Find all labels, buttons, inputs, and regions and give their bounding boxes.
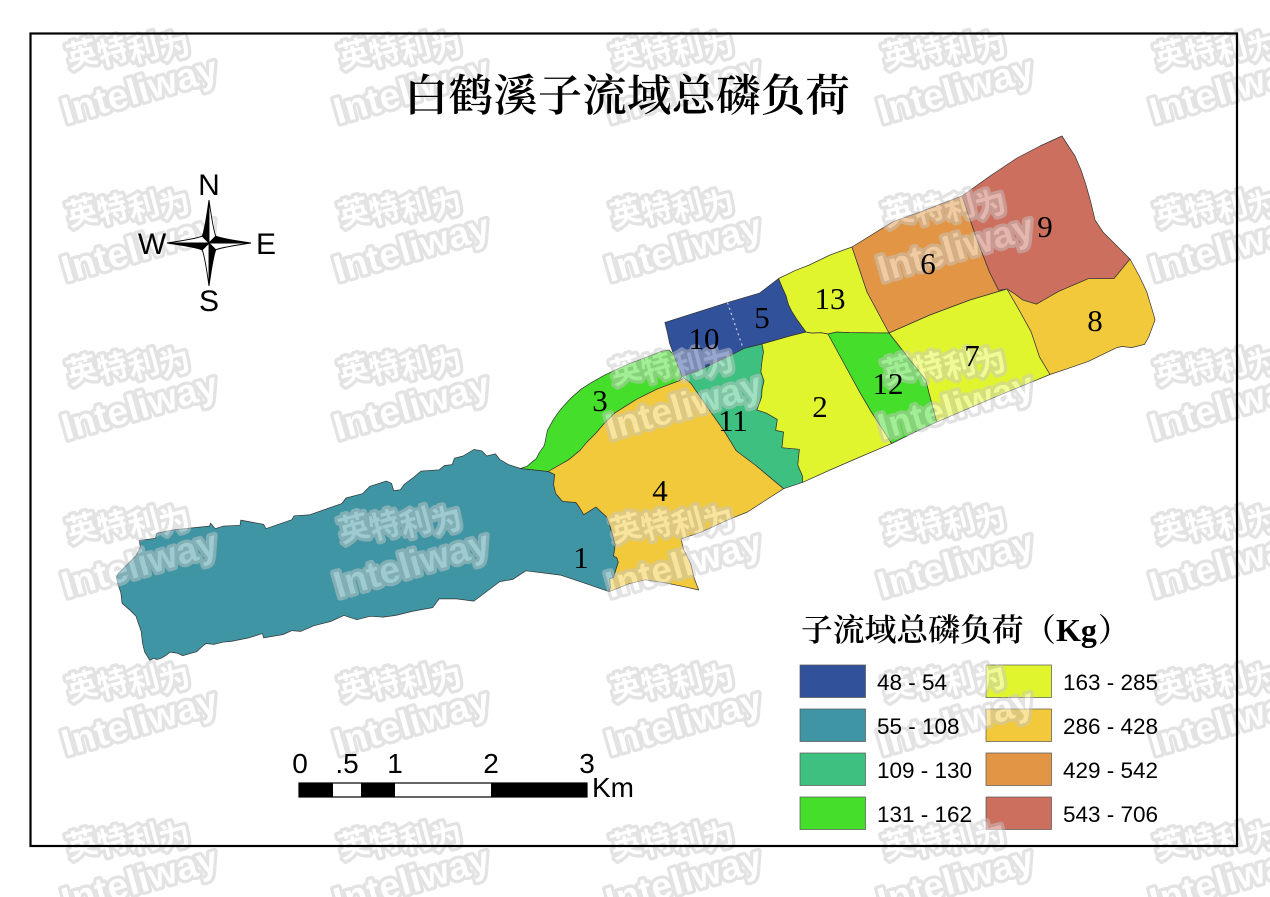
svg-text:9: 9 [1037, 209, 1053, 244]
svg-text:S: S [199, 285, 219, 318]
svg-text:10: 10 [689, 321, 720, 356]
svg-text:11: 11 [718, 403, 748, 438]
svg-text:7: 7 [964, 338, 980, 373]
svg-text:Km: Km [592, 772, 634, 803]
svg-text:13: 13 [815, 281, 846, 316]
svg-text:8: 8 [1087, 303, 1103, 338]
svg-text:5: 5 [754, 300, 770, 335]
svg-text:Kg: Kg [1056, 612, 1097, 648]
svg-text:55 - 108: 55 - 108 [877, 714, 960, 739]
svg-text:.5: .5 [335, 748, 358, 779]
svg-text:0: 0 [292, 748, 308, 779]
svg-text:3: 3 [592, 383, 608, 418]
svg-text:429 - 542: 429 - 542 [1063, 758, 1158, 783]
svg-text:W: W [138, 228, 167, 261]
svg-text:12: 12 [873, 366, 904, 401]
svg-text:131 - 162: 131 - 162 [877, 802, 972, 827]
svg-text:2: 2 [483, 748, 499, 779]
svg-text:286 - 428: 286 - 428 [1063, 714, 1158, 739]
svg-text:163 - 285: 163 - 285 [1063, 670, 1158, 695]
svg-text:2: 2 [812, 389, 828, 424]
svg-text:E: E [256, 228, 276, 261]
svg-text:6: 6 [920, 246, 936, 281]
svg-text:1: 1 [387, 748, 403, 779]
svg-text:543 - 706: 543 - 706 [1063, 802, 1158, 827]
svg-text:4: 4 [652, 473, 668, 508]
svg-text:48 - 54: 48 - 54 [877, 670, 947, 695]
svg-text:N: N [198, 169, 220, 202]
svg-text:109 - 130: 109 - 130 [877, 758, 972, 783]
svg-text:1: 1 [573, 540, 589, 575]
